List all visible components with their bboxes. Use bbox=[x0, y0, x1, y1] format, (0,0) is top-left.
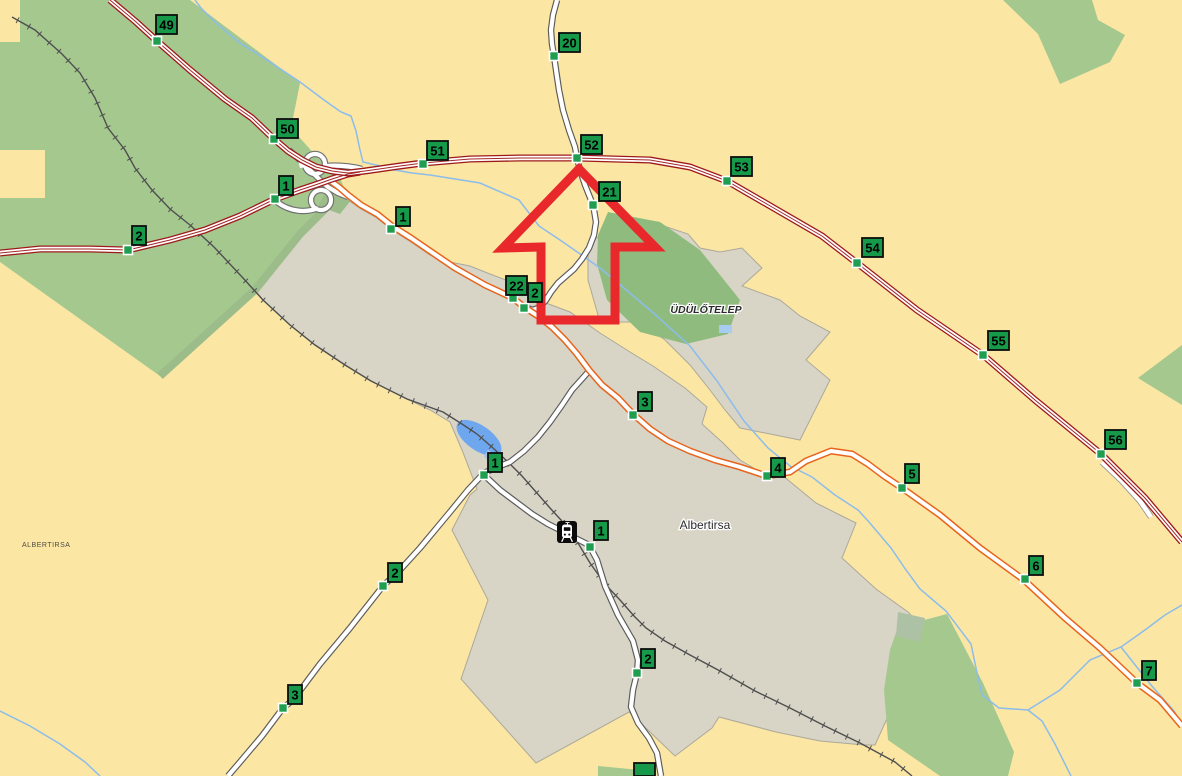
svg-text:22: 22 bbox=[509, 279, 523, 294]
svg-text:3: 3 bbox=[641, 395, 648, 410]
svg-text:50: 50 bbox=[280, 122, 294, 137]
svg-text:53: 53 bbox=[734, 160, 748, 175]
svg-text:1: 1 bbox=[399, 210, 406, 225]
svg-text:2: 2 bbox=[135, 229, 142, 244]
svg-text:1: 1 bbox=[597, 524, 604, 539]
svg-text:20: 20 bbox=[562, 36, 576, 51]
svg-text:54: 54 bbox=[865, 241, 880, 256]
svg-text:5: 5 bbox=[908, 467, 915, 482]
svg-text:56: 56 bbox=[1108, 433, 1122, 448]
svg-text:ALBERTIRSA: ALBERTIRSA bbox=[22, 542, 70, 549]
svg-text:1: 1 bbox=[282, 179, 289, 194]
svg-text:ÜDÜLŐTELEP: ÜDÜLŐTELEP bbox=[670, 303, 742, 316]
svg-text:21: 21 bbox=[602, 185, 616, 200]
svg-text:3: 3 bbox=[291, 688, 298, 703]
svg-text:6: 6 bbox=[1032, 559, 1039, 574]
svg-text:52: 52 bbox=[584, 138, 598, 153]
svg-text:2: 2 bbox=[644, 652, 651, 667]
svg-text:49: 49 bbox=[159, 18, 173, 33]
svg-text:55: 55 bbox=[991, 334, 1005, 349]
svg-text:7: 7 bbox=[1145, 664, 1152, 679]
svg-text:1: 1 bbox=[491, 456, 498, 471]
svg-text:2: 2 bbox=[531, 286, 538, 301]
svg-text:2: 2 bbox=[391, 566, 398, 581]
svg-text:Albertirsa: Albertirsa bbox=[680, 518, 731, 532]
svg-text:4: 4 bbox=[774, 461, 782, 476]
svg-text:51: 51 bbox=[430, 144, 444, 159]
